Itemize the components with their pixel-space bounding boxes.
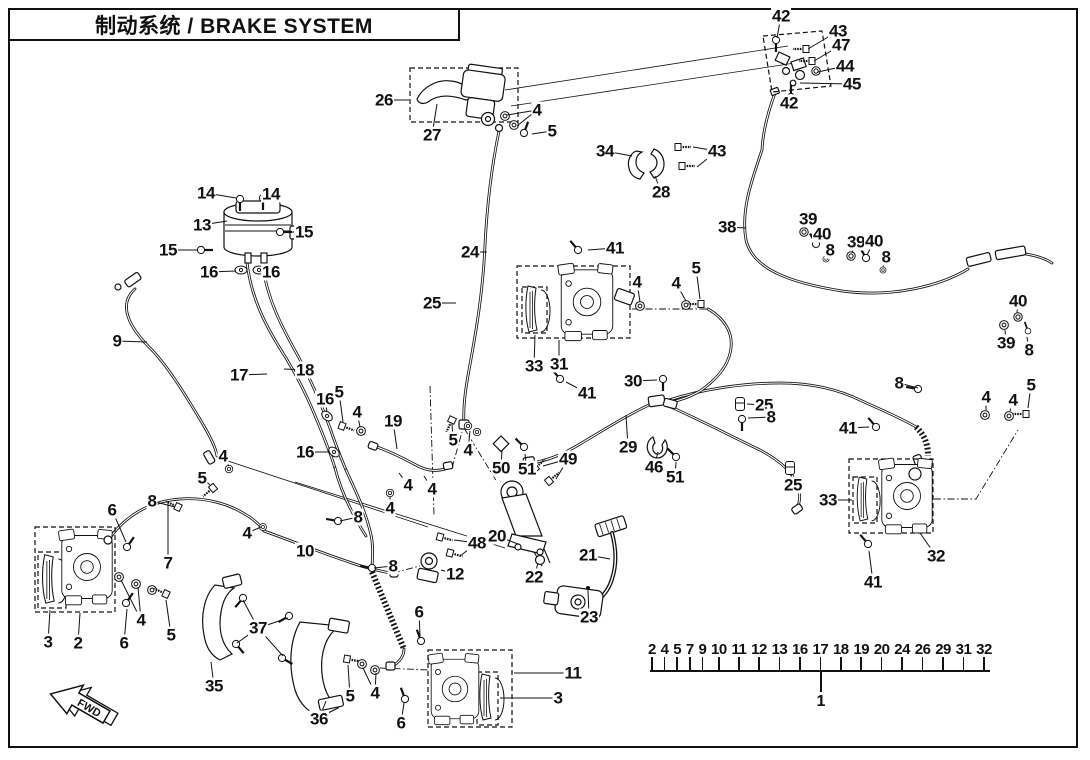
index-part-29: 29 [935,642,951,670]
callout-5: 5 [166,627,177,644]
callout-37: 37 [248,620,268,637]
index-part-number: 20 [874,642,890,657]
index-tick [881,657,883,670]
callout-36: 36 [309,711,329,728]
callout-42: 42 [779,95,799,112]
callout-26: 26 [374,92,394,109]
callout-29: 29 [618,439,638,456]
index-part-18: 18 [833,642,849,670]
callout-5: 5 [547,123,558,140]
callout-4: 4 [463,442,474,459]
callout-8: 8 [353,509,364,526]
callout-35: 35 [204,678,224,695]
callout-19: 19 [383,413,403,430]
index-bracket-stem [820,670,822,692]
callout-51: 51 [665,469,685,486]
parts-index-strip: 245791011121316171819202426293132 [648,642,992,670]
callout-4: 4 [242,525,253,542]
callout-16: 16 [295,444,315,461]
index-part-11: 11 [732,642,747,670]
callout-8: 8 [894,375,905,392]
callout-15: 15 [294,224,314,241]
index-tick [820,657,822,670]
index-part-4: 4 [661,642,669,670]
index-part-number: 4 [661,642,669,657]
index-part-26: 26 [915,642,931,670]
index-tick [922,657,924,670]
callout-6: 6 [396,715,407,732]
index-tick [942,657,944,670]
index-part-number: 32 [976,642,992,657]
index-part-number: 26 [915,642,931,657]
callout-6: 6 [107,502,118,519]
callout-48: 48 [467,535,487,552]
callout-3: 3 [43,634,54,651]
callout-15: 15 [158,242,178,259]
callout-42: 42 [771,8,791,25]
index-tick [840,657,842,670]
index-part-9: 9 [698,642,706,670]
index-part-number: 18 [833,642,849,657]
callout-4: 4 [532,102,543,119]
callout-18: 18 [295,362,315,379]
index-part-number: 17 [812,642,828,657]
callout-14: 14 [261,186,281,203]
callout-6: 6 [414,604,425,621]
callout-5: 5 [691,260,702,277]
index-part-number: 19 [853,642,869,657]
callout-8: 8 [881,249,892,266]
index-tick [799,657,801,670]
callout-10: 10 [295,543,315,560]
callout-24: 24 [460,244,480,261]
callout-4: 4 [632,274,643,291]
index-part-12: 12 [751,642,767,670]
callout-4: 4 [218,448,229,465]
callout-4: 4 [981,389,992,406]
callout-33: 33 [524,358,544,375]
callout-33: 33 [818,492,838,509]
callout-8: 8 [825,242,836,259]
callout-11: 11 [564,665,583,682]
callout-12: 12 [445,566,465,583]
callout-13: 13 [192,217,212,234]
index-part-10: 10 [711,642,727,670]
callout-4: 4 [136,612,147,629]
index-part-17: 17 [812,642,828,670]
callout-5: 5 [197,470,208,487]
callout-45: 45 [842,76,862,93]
callout-7: 7 [163,555,174,572]
callout-2: 2 [73,635,84,652]
callout-16: 16 [261,264,281,281]
index-part-24: 24 [894,642,910,670]
index-tick [689,657,691,670]
callout-22: 22 [524,569,544,586]
callout-41: 41 [863,574,883,591]
callout-8: 8 [766,409,777,426]
callout-3: 3 [553,690,564,707]
callout-31: 31 [549,356,569,373]
callout-44: 44 [835,58,855,75]
callout-41: 41 [577,385,597,402]
callout-4: 4 [427,481,438,498]
index-part-20: 20 [874,642,890,670]
callout-8: 8 [147,493,158,510]
callout-5: 5 [448,432,459,449]
index-part-7: 7 [686,642,694,670]
callout-47: 47 [831,37,851,54]
index-tick [758,657,760,670]
index-part-number: 7 [686,642,694,657]
callout-8: 8 [1024,342,1035,359]
callout-32: 32 [926,548,946,565]
callout-39: 39 [996,335,1016,352]
index-part-number: 29 [935,642,951,657]
index-tick [963,657,965,670]
callout-4: 4 [370,685,381,702]
callout-30: 30 [623,373,643,390]
callout-20: 20 [487,528,507,545]
index-part-number: 16 [792,642,808,657]
callout-4: 4 [671,275,682,292]
callout-9: 9 [112,333,123,350]
callout-4: 4 [385,500,396,517]
index-assembly-number: 1 [817,693,826,711]
index-tick [901,657,903,670]
page-title: 制动系统 / BRAKE SYSTEM [8,8,460,41]
index-tick [718,657,720,670]
callout-46: 46 [644,459,664,476]
callout-14: 14 [196,185,216,202]
callout-4: 4 [352,404,363,421]
index-tick [664,657,666,670]
callout-25: 25 [783,477,803,494]
callout-5: 5 [345,688,356,705]
callout-38: 38 [717,219,737,236]
callout-4: 4 [1008,392,1019,409]
callout-39: 39 [846,234,866,251]
index-tick [738,657,740,670]
index-part-number: 9 [698,642,706,657]
index-tick [651,657,653,670]
callout-41: 41 [605,240,625,257]
index-part-31: 31 [956,642,972,670]
callout-40: 40 [1008,293,1028,310]
index-tick [860,657,862,670]
index-part-32: 32 [976,642,992,670]
callout-23: 23 [579,609,599,626]
callout-41: 41 [838,420,858,437]
index-part-16: 16 [792,642,808,670]
index-tick [779,657,781,670]
callout-16: 16 [315,391,335,408]
index-part-number: 11 [732,642,747,657]
callout-5: 5 [1026,377,1037,394]
index-part-19: 19 [853,642,869,670]
callout-16: 16 [199,264,219,281]
callout-34: 34 [595,143,615,160]
index-tick [676,657,678,670]
callout-28: 28 [651,184,671,201]
index-part-2: 2 [648,642,656,670]
index-part-number: 12 [751,642,767,657]
index-tick [983,657,985,670]
callout-25: 25 [422,295,442,312]
callout-43: 43 [707,143,727,160]
callout-8: 8 [388,558,399,575]
callout-50: 50 [491,460,511,477]
callout-21: 21 [578,547,598,564]
callout-5: 5 [334,384,345,401]
index-part-number: 2 [648,642,656,657]
index-part-number: 10 [711,642,727,657]
callout-49: 49 [558,451,578,468]
callout-51: 51 [517,461,537,478]
index-part-number: 31 [956,642,972,657]
index-part-number: 13 [772,642,788,657]
callout-6: 6 [119,635,130,652]
callout-27: 27 [422,127,442,144]
index-part-5: 5 [673,642,681,670]
index-part-number: 24 [894,642,910,657]
index-part-13: 13 [772,642,788,670]
index-part-number: 5 [673,642,681,657]
index-tick [702,657,704,670]
callout-17: 17 [229,367,249,384]
callout-4: 4 [403,477,414,494]
